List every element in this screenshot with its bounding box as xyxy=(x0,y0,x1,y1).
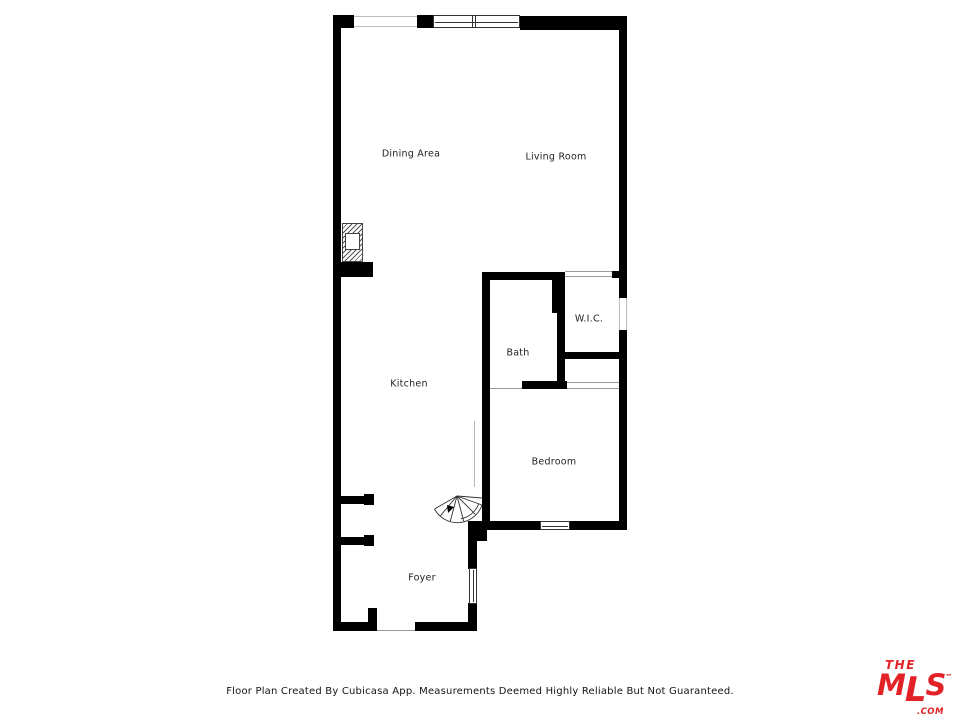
wall-wic-top-corner xyxy=(612,271,619,278)
wall-wic-bottom xyxy=(565,352,622,359)
room-label-kitchen: Kitchen xyxy=(390,379,427,390)
stair-edge-line xyxy=(474,421,475,487)
wall-bath-bedroom-left xyxy=(482,272,490,522)
window xyxy=(354,16,417,27)
logo-l-letter: L xyxy=(905,670,926,710)
room-label-dining-area: Dining Area xyxy=(382,149,440,160)
wall-bath-wic-divider xyxy=(557,313,565,382)
floor-plan: Dining Area Living Room W.I.C. Bath Kitc… xyxy=(0,0,960,720)
entry-door-opening xyxy=(377,622,415,631)
the-mls-logo: THE MLS™ .COM xyxy=(877,659,953,717)
room-label-bath: Bath xyxy=(506,348,529,359)
window xyxy=(540,521,570,530)
logo-mls-text: MLS™ xyxy=(877,671,953,707)
spiral-stairs xyxy=(433,486,487,534)
fireplace-firebox xyxy=(345,233,360,250)
logo-trademark: ™ xyxy=(945,673,952,681)
wall-bath-thick xyxy=(552,272,565,313)
window-mullion xyxy=(472,16,476,27)
wall-right-upper xyxy=(619,17,627,298)
fireplace xyxy=(342,223,363,262)
window xyxy=(619,298,627,330)
wall-stub-cap xyxy=(364,535,374,546)
wall-bath-bottom xyxy=(522,381,567,389)
door-opening xyxy=(490,382,522,389)
wall-opening xyxy=(567,382,619,389)
wall-foyer-right xyxy=(468,529,477,569)
window xyxy=(469,568,477,604)
window xyxy=(433,15,520,28)
room-label-foyer: Foyer xyxy=(408,573,436,584)
room-label-wic: W.I.C. xyxy=(575,314,603,325)
wall-right-lower xyxy=(619,330,627,529)
disclaimer-text: Floor Plan Created By Cubicasa App. Meas… xyxy=(0,686,960,697)
wall-top-segment xyxy=(520,16,627,30)
room-label-bedroom: Bedroom xyxy=(532,457,577,468)
room-label-living-room: Living Room xyxy=(525,152,586,163)
wall-top-segment xyxy=(417,15,433,28)
wall-door-jamb xyxy=(368,608,377,631)
wall-opening xyxy=(565,271,612,277)
wall-stub xyxy=(333,262,373,277)
wall-stub-cap xyxy=(364,494,374,505)
wall-bedroom-bottom xyxy=(570,521,627,530)
wall-bottom-segment xyxy=(415,622,477,631)
